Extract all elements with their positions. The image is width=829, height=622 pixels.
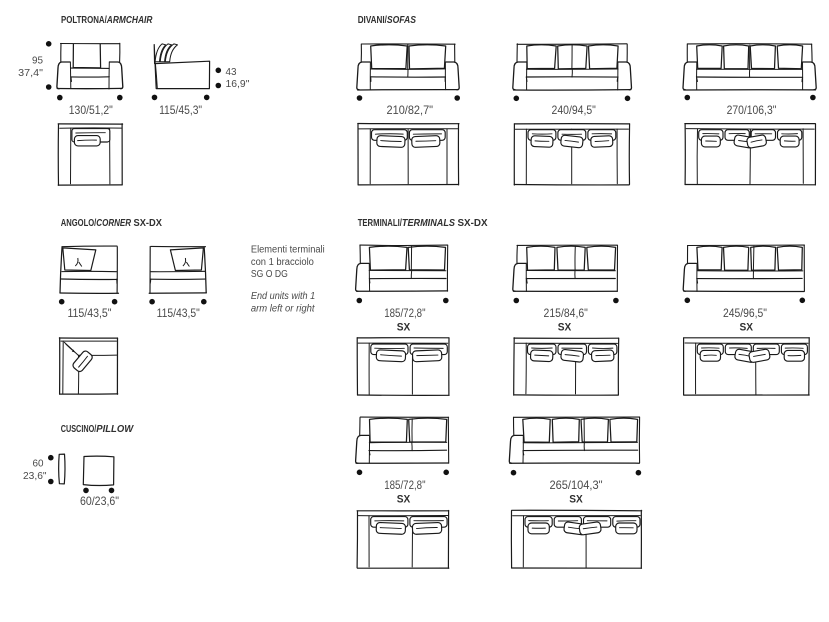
- svg-text:185/72,8": 185/72,8": [384, 306, 425, 320]
- svg-text:43: 43: [226, 66, 237, 78]
- svg-text:240/94,5": 240/94,5": [552, 103, 596, 117]
- svg-text:CUSCINO/: CUSCINO/: [61, 424, 97, 435]
- svg-text:130/51,2": 130/51,2": [69, 103, 113, 117]
- svg-text:215/84,6": 215/84,6": [544, 306, 588, 320]
- svg-text:16,9": 16,9": [226, 78, 250, 90]
- svg-text:265/104,3": 265/104,3": [549, 478, 602, 492]
- svg-text:115/43,5": 115/43,5": [157, 306, 200, 320]
- svg-text:TERMINALS: TERMINALS: [402, 218, 455, 229]
- svg-text:arm left or right: arm left or right: [251, 304, 316, 315]
- svg-text:CORNER: CORNER: [96, 218, 131, 229]
- svg-text:185/72,8": 185/72,8": [384, 478, 425, 492]
- svg-text:23,6": 23,6": [23, 470, 47, 482]
- svg-text:End units with 1: End units with 1: [251, 291, 315, 302]
- svg-text:DIVANI/: DIVANI/: [358, 15, 387, 26]
- svg-text:SX: SX: [558, 322, 572, 334]
- svg-text:SX: SX: [569, 493, 583, 505]
- svg-text:115/45,3": 115/45,3": [159, 103, 202, 117]
- svg-text:ARMCHAIR: ARMCHAIR: [106, 15, 153, 26]
- svg-text:con 1 bracciolo: con 1 bracciolo: [251, 257, 314, 268]
- svg-text:60/23,6": 60/23,6": [80, 494, 119, 508]
- svg-text:SX-DX: SX-DX: [458, 218, 488, 229]
- svg-text:TERMINALI/: TERMINALI/: [358, 218, 402, 229]
- svg-text:PILLOW: PILLOW: [96, 424, 134, 435]
- svg-text:245/96,5": 245/96,5": [723, 306, 767, 320]
- svg-text:37,4": 37,4": [18, 67, 43, 79]
- svg-text:Elementi terminali: Elementi terminali: [251, 244, 325, 255]
- svg-text:SX-DX: SX-DX: [134, 218, 163, 229]
- svg-text:115/43,5": 115/43,5": [67, 306, 111, 320]
- svg-text:POLTRONA/: POLTRONA/: [61, 15, 107, 26]
- svg-text:60: 60: [33, 458, 44, 470]
- svg-text:ANGOLO/: ANGOLO/: [61, 218, 97, 229]
- svg-text:210/82,7": 210/82,7": [387, 103, 434, 117]
- svg-text:95: 95: [32, 55, 43, 67]
- svg-text:SG O DG: SG O DG: [251, 269, 288, 280]
- svg-text:SOFAS: SOFAS: [387, 15, 416, 26]
- svg-text:270/106,3": 270/106,3": [727, 103, 777, 117]
- svg-text:SX: SX: [397, 322, 411, 334]
- svg-text:SX: SX: [397, 493, 411, 505]
- svg-text:SX: SX: [740, 322, 754, 334]
